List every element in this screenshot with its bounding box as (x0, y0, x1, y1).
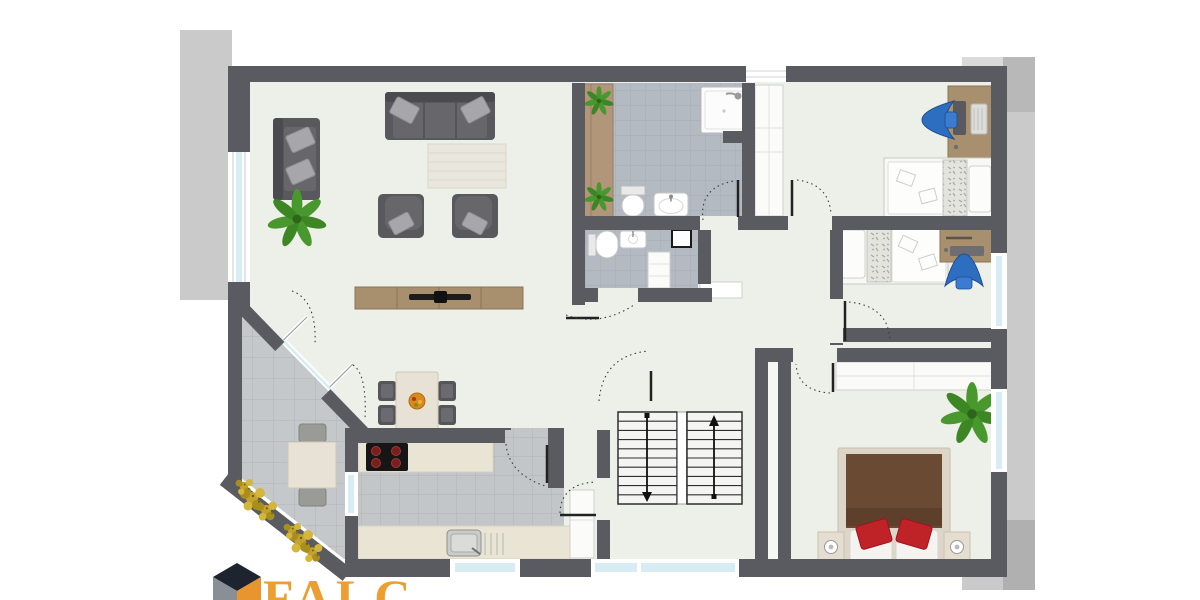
armchair-2 (452, 194, 498, 238)
window-top (746, 66, 786, 82)
toilet-bath (621, 186, 645, 216)
nightstand-left (818, 532, 844, 562)
window-master-right (991, 389, 1007, 472)
wall-left-lower (228, 296, 242, 488)
sideboard-tv (355, 287, 523, 309)
window-kitchen-terrace (345, 472, 358, 516)
wall-stair-right (755, 362, 768, 559)
wall-wc-bottom (572, 288, 712, 302)
floor-plan-page: O B FALC (0, 0, 1200, 600)
wc-shelf (648, 252, 670, 288)
brand-wordmark: FALC (263, 569, 415, 600)
sink-wc (620, 231, 646, 248)
wall-master-left (778, 348, 791, 559)
stair-divider (678, 412, 687, 504)
stair-flight-up (687, 412, 742, 504)
double-bed (838, 448, 950, 566)
rug (428, 144, 506, 188)
stair-flight-down (618, 412, 677, 504)
terrace-table (288, 442, 336, 488)
service-shaft (672, 230, 691, 247)
hall-wardrobe (584, 84, 614, 217)
wall-bedroom2-bottom (843, 328, 1007, 342)
wall-shower-stub (723, 131, 755, 143)
fruit-bowl (409, 393, 425, 409)
children-bedroom-2 (836, 224, 992, 289)
wall-master-top (755, 348, 1007, 362)
wall-top (228, 66, 1007, 82)
window-bedroom2-right (991, 253, 1007, 329)
brand-logo: O B FALC (213, 563, 415, 600)
sink-bath (654, 193, 688, 216)
terrace-chair-top (299, 424, 326, 442)
wall-bath-right (742, 83, 755, 230)
shower (701, 87, 747, 133)
bed-bedroom-2 (836, 224, 948, 284)
floor-plan-drawing: O B FALC (0, 0, 1200, 600)
wall-kitchen-pillar (548, 428, 564, 488)
sofa-two-seat (273, 118, 320, 200)
window-kitchen-bottom (450, 559, 520, 577)
toilet-wc (588, 231, 618, 258)
niche-strip (768, 362, 778, 559)
wall-kitchen-top (345, 428, 511, 443)
wall-living-bath (572, 83, 585, 305)
armchair-1 (378, 194, 424, 238)
sofa-three-seat (385, 92, 495, 140)
counter-sink (358, 526, 570, 559)
window-living-left (228, 152, 250, 282)
closet-bedroom-1 (755, 85, 783, 216)
terrace-chair-bottom (299, 488, 326, 506)
nightstand-right (944, 532, 970, 562)
window-landing-bottom (591, 559, 739, 577)
brand-cube-icon (213, 563, 261, 600)
bed-bedroom-1 (884, 158, 996, 218)
tall-cabinet (570, 490, 594, 558)
stairwell (618, 412, 742, 504)
counter-hob (358, 441, 493, 472)
